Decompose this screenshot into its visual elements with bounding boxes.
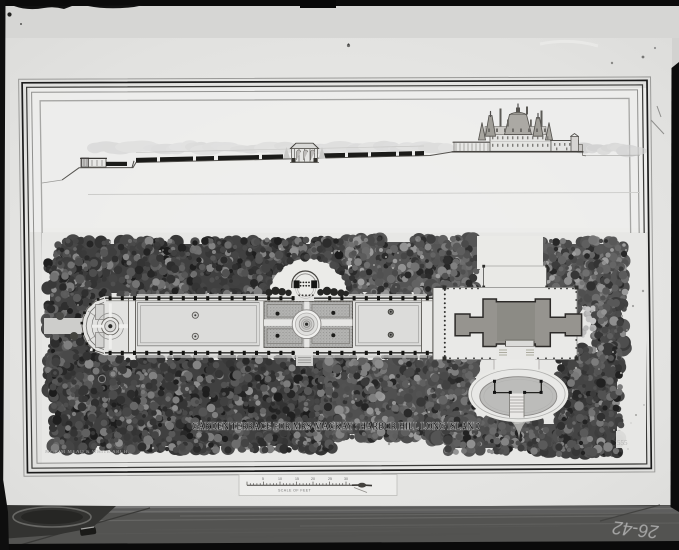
svg-text:SCALE OF FEET: SCALE OF FEET <box>278 489 312 493</box>
svg-text:20: 20 <box>311 477 315 481</box>
svg-text:30: 30 <box>344 477 348 481</box>
svg-text:5: 5 <box>262 477 264 481</box>
svg-text:25: 25 <box>328 477 332 481</box>
svg-text:555: 555 <box>617 439 628 447</box>
svg-text:Mc.KIM MEAD & WHITE ARCH.: Mc.KIM MEAD & WHITE ARCH. <box>45 450 130 455</box>
svg-text:15: 15 <box>295 477 299 481</box>
svg-text:10: 10 <box>278 477 282 481</box>
svg-text:GARDEN TERRACE FOR MRS·MACKAY: GARDEN TERRACE FOR MRS·MACKAY : HARBOR H… <box>192 421 480 433</box>
